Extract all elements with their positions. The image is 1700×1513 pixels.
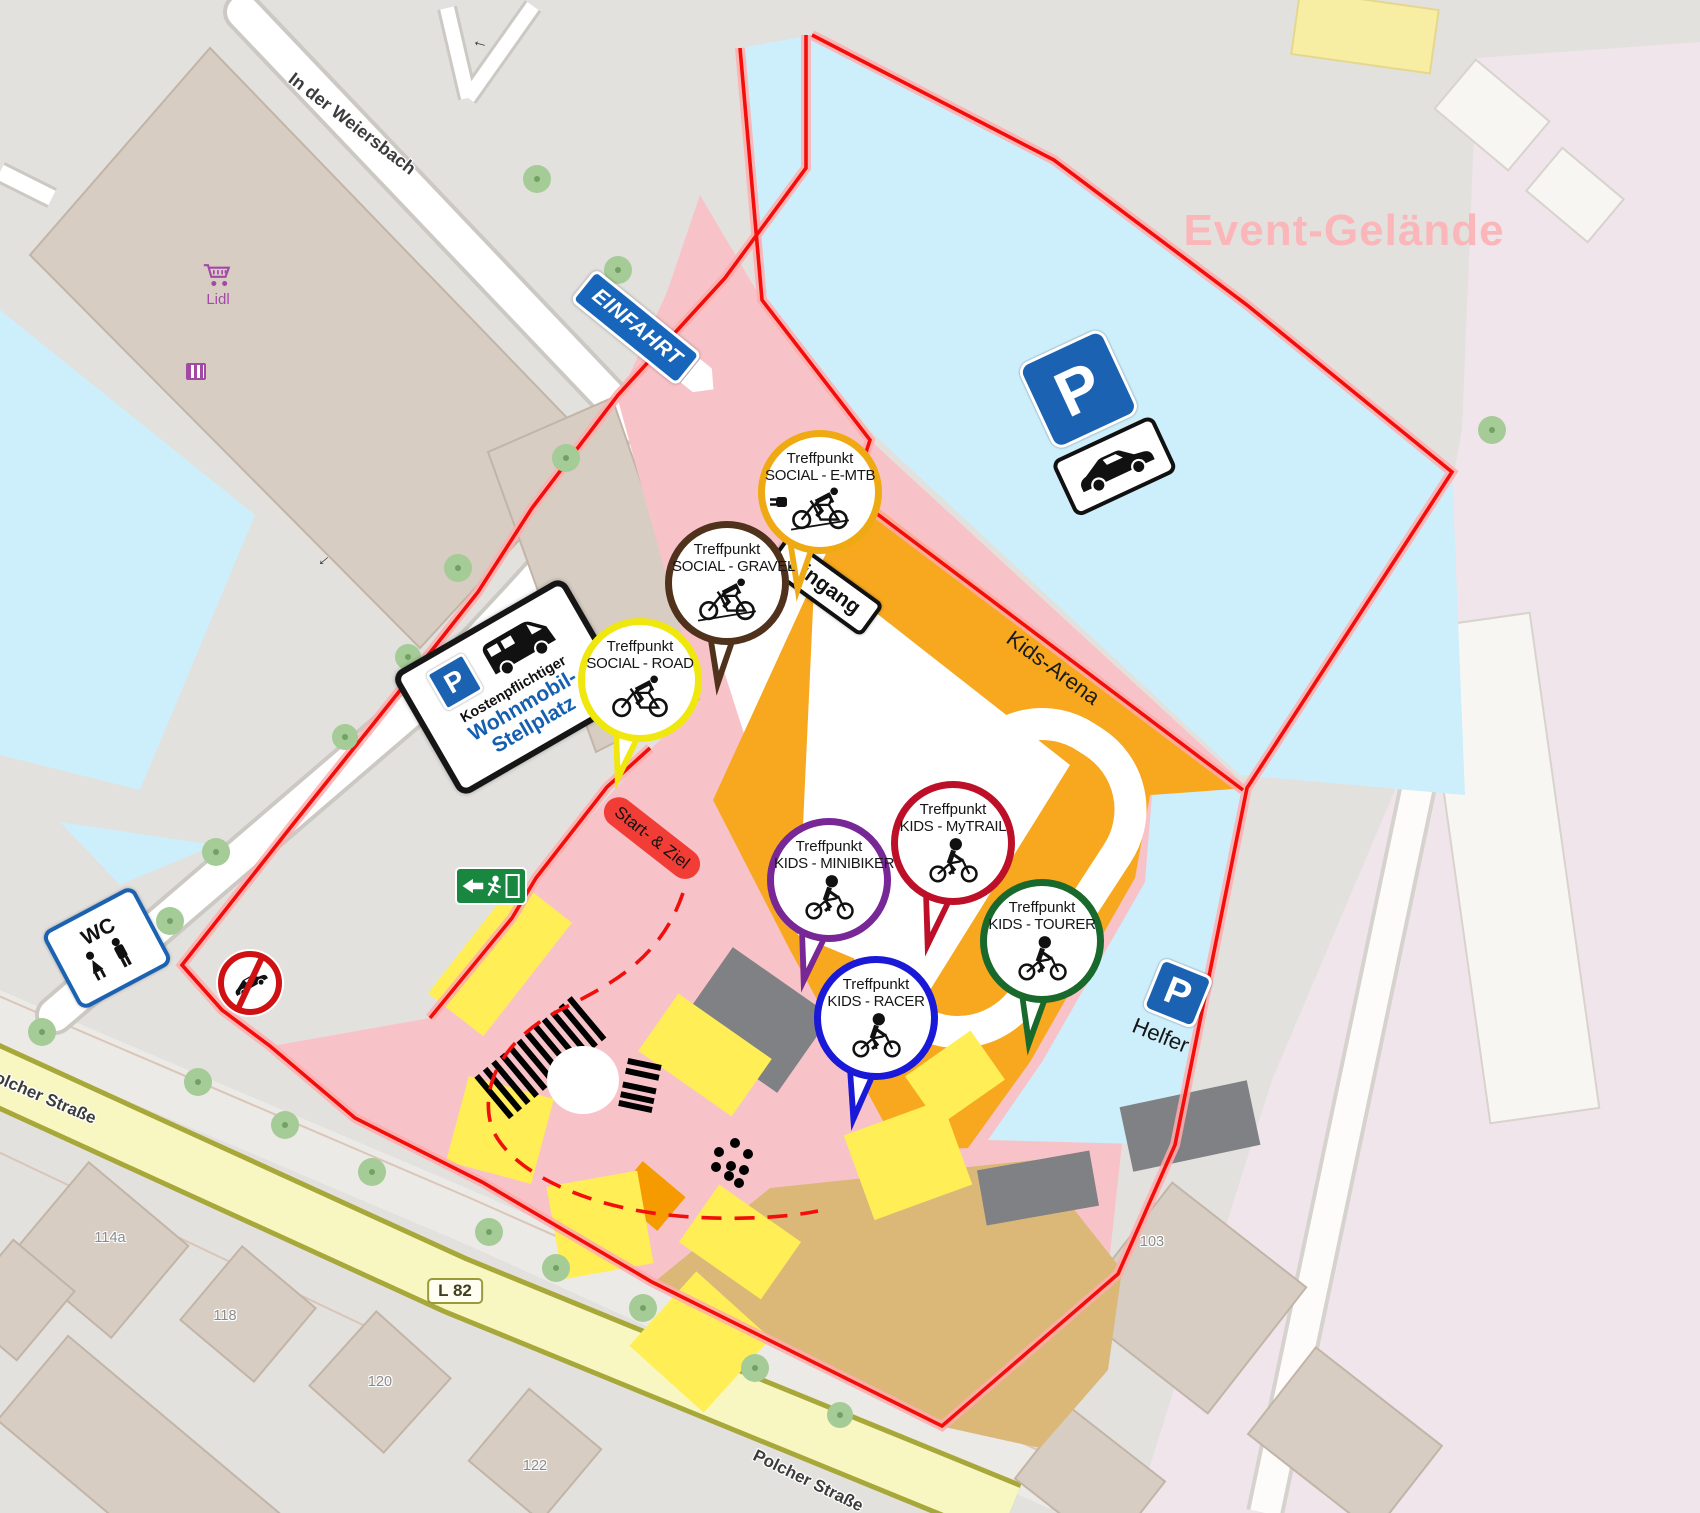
minibiker-bike-icon bbox=[798, 874, 860, 921]
exit-runner-icon bbox=[460, 872, 522, 900]
house-number: 114a bbox=[94, 1230, 125, 1246]
marker-line2: KIDS - MINIBIKER bbox=[774, 855, 884, 872]
no-cars-sign bbox=[218, 951, 282, 1015]
marker-treffpunkt-social-road[interactable]: Treffpunkt SOCIAL - ROAD bbox=[578, 618, 702, 742]
marker-treffpunkt-social-e-mtb[interactable]: Treffpunkt SOCIAL - E-MTB bbox=[758, 430, 882, 554]
shopping-cart-icon bbox=[203, 262, 233, 290]
marker-treffpunkt-kids-mytrail[interactable]: Treffpunkt KIDS - MyTRAIL bbox=[891, 781, 1015, 905]
marker-line1: Treffpunkt bbox=[821, 976, 931, 993]
lidl-label: Lidl bbox=[206, 291, 229, 308]
house-number: 118 bbox=[213, 1308, 236, 1324]
marker-line1: Treffpunkt bbox=[585, 638, 695, 655]
e-mtb-cyclist-icon bbox=[787, 486, 853, 532]
house-number: 120 bbox=[368, 1374, 392, 1390]
shop-icon bbox=[186, 363, 206, 380]
road-ref-badge: L 82 bbox=[427, 1278, 483, 1304]
marker-treffpunkt-kids-racer[interactable]: Treffpunkt KIDS - RACER bbox=[814, 956, 938, 1080]
mytrail-bike-icon bbox=[922, 837, 984, 884]
marker-treffpunkt-kids-minibiker[interactable]: Treffpunkt KIDS - MINIBIKER bbox=[767, 818, 891, 942]
marker-line1: Treffpunkt bbox=[774, 838, 884, 855]
marker-line1: Treffpunkt bbox=[898, 801, 1008, 818]
marker-line2: KIDS - RACER bbox=[821, 993, 931, 1010]
marker-line1: Treffpunkt bbox=[672, 541, 782, 558]
marker-line1: Treffpunkt bbox=[987, 899, 1097, 916]
marker-line2: SOCIAL - GRAVEL bbox=[672, 558, 782, 575]
event-site-map: In der Weiersbach Event-Gelände Kids-Are… bbox=[0, 0, 1700, 1513]
marker-line2: SOCIAL - E-MTB bbox=[765, 467, 875, 484]
event-area-label: Event-Gelände bbox=[1183, 206, 1504, 256]
house-number: 122 bbox=[523, 1458, 547, 1474]
e-plug-icon bbox=[769, 493, 791, 511]
gravel-cyclist-icon bbox=[694, 577, 760, 623]
emergency-exit-sign bbox=[457, 869, 525, 903]
marker-line2: KIDS - TOURER bbox=[987, 916, 1097, 933]
marker-line1: Treffpunkt bbox=[765, 450, 875, 467]
road-cyclist-icon bbox=[607, 674, 673, 720]
marker-treffpunkt-kids-tourer[interactable]: Treffpunkt KIDS - TOURER bbox=[980, 879, 1104, 1003]
marker-treffpunkt-social-gravel[interactable]: Treffpunkt SOCIAL - GRAVEL bbox=[665, 521, 789, 645]
marker-line2: KIDS - MyTRAIL bbox=[898, 818, 1008, 835]
lidl-poi: Lidl bbox=[193, 262, 243, 308]
racer-bike-icon bbox=[845, 1012, 907, 1059]
marker-line2: SOCIAL - ROAD bbox=[585, 655, 695, 672]
tourer-bike-icon bbox=[1011, 935, 1073, 982]
house-number: 103 bbox=[1140, 1234, 1164, 1250]
